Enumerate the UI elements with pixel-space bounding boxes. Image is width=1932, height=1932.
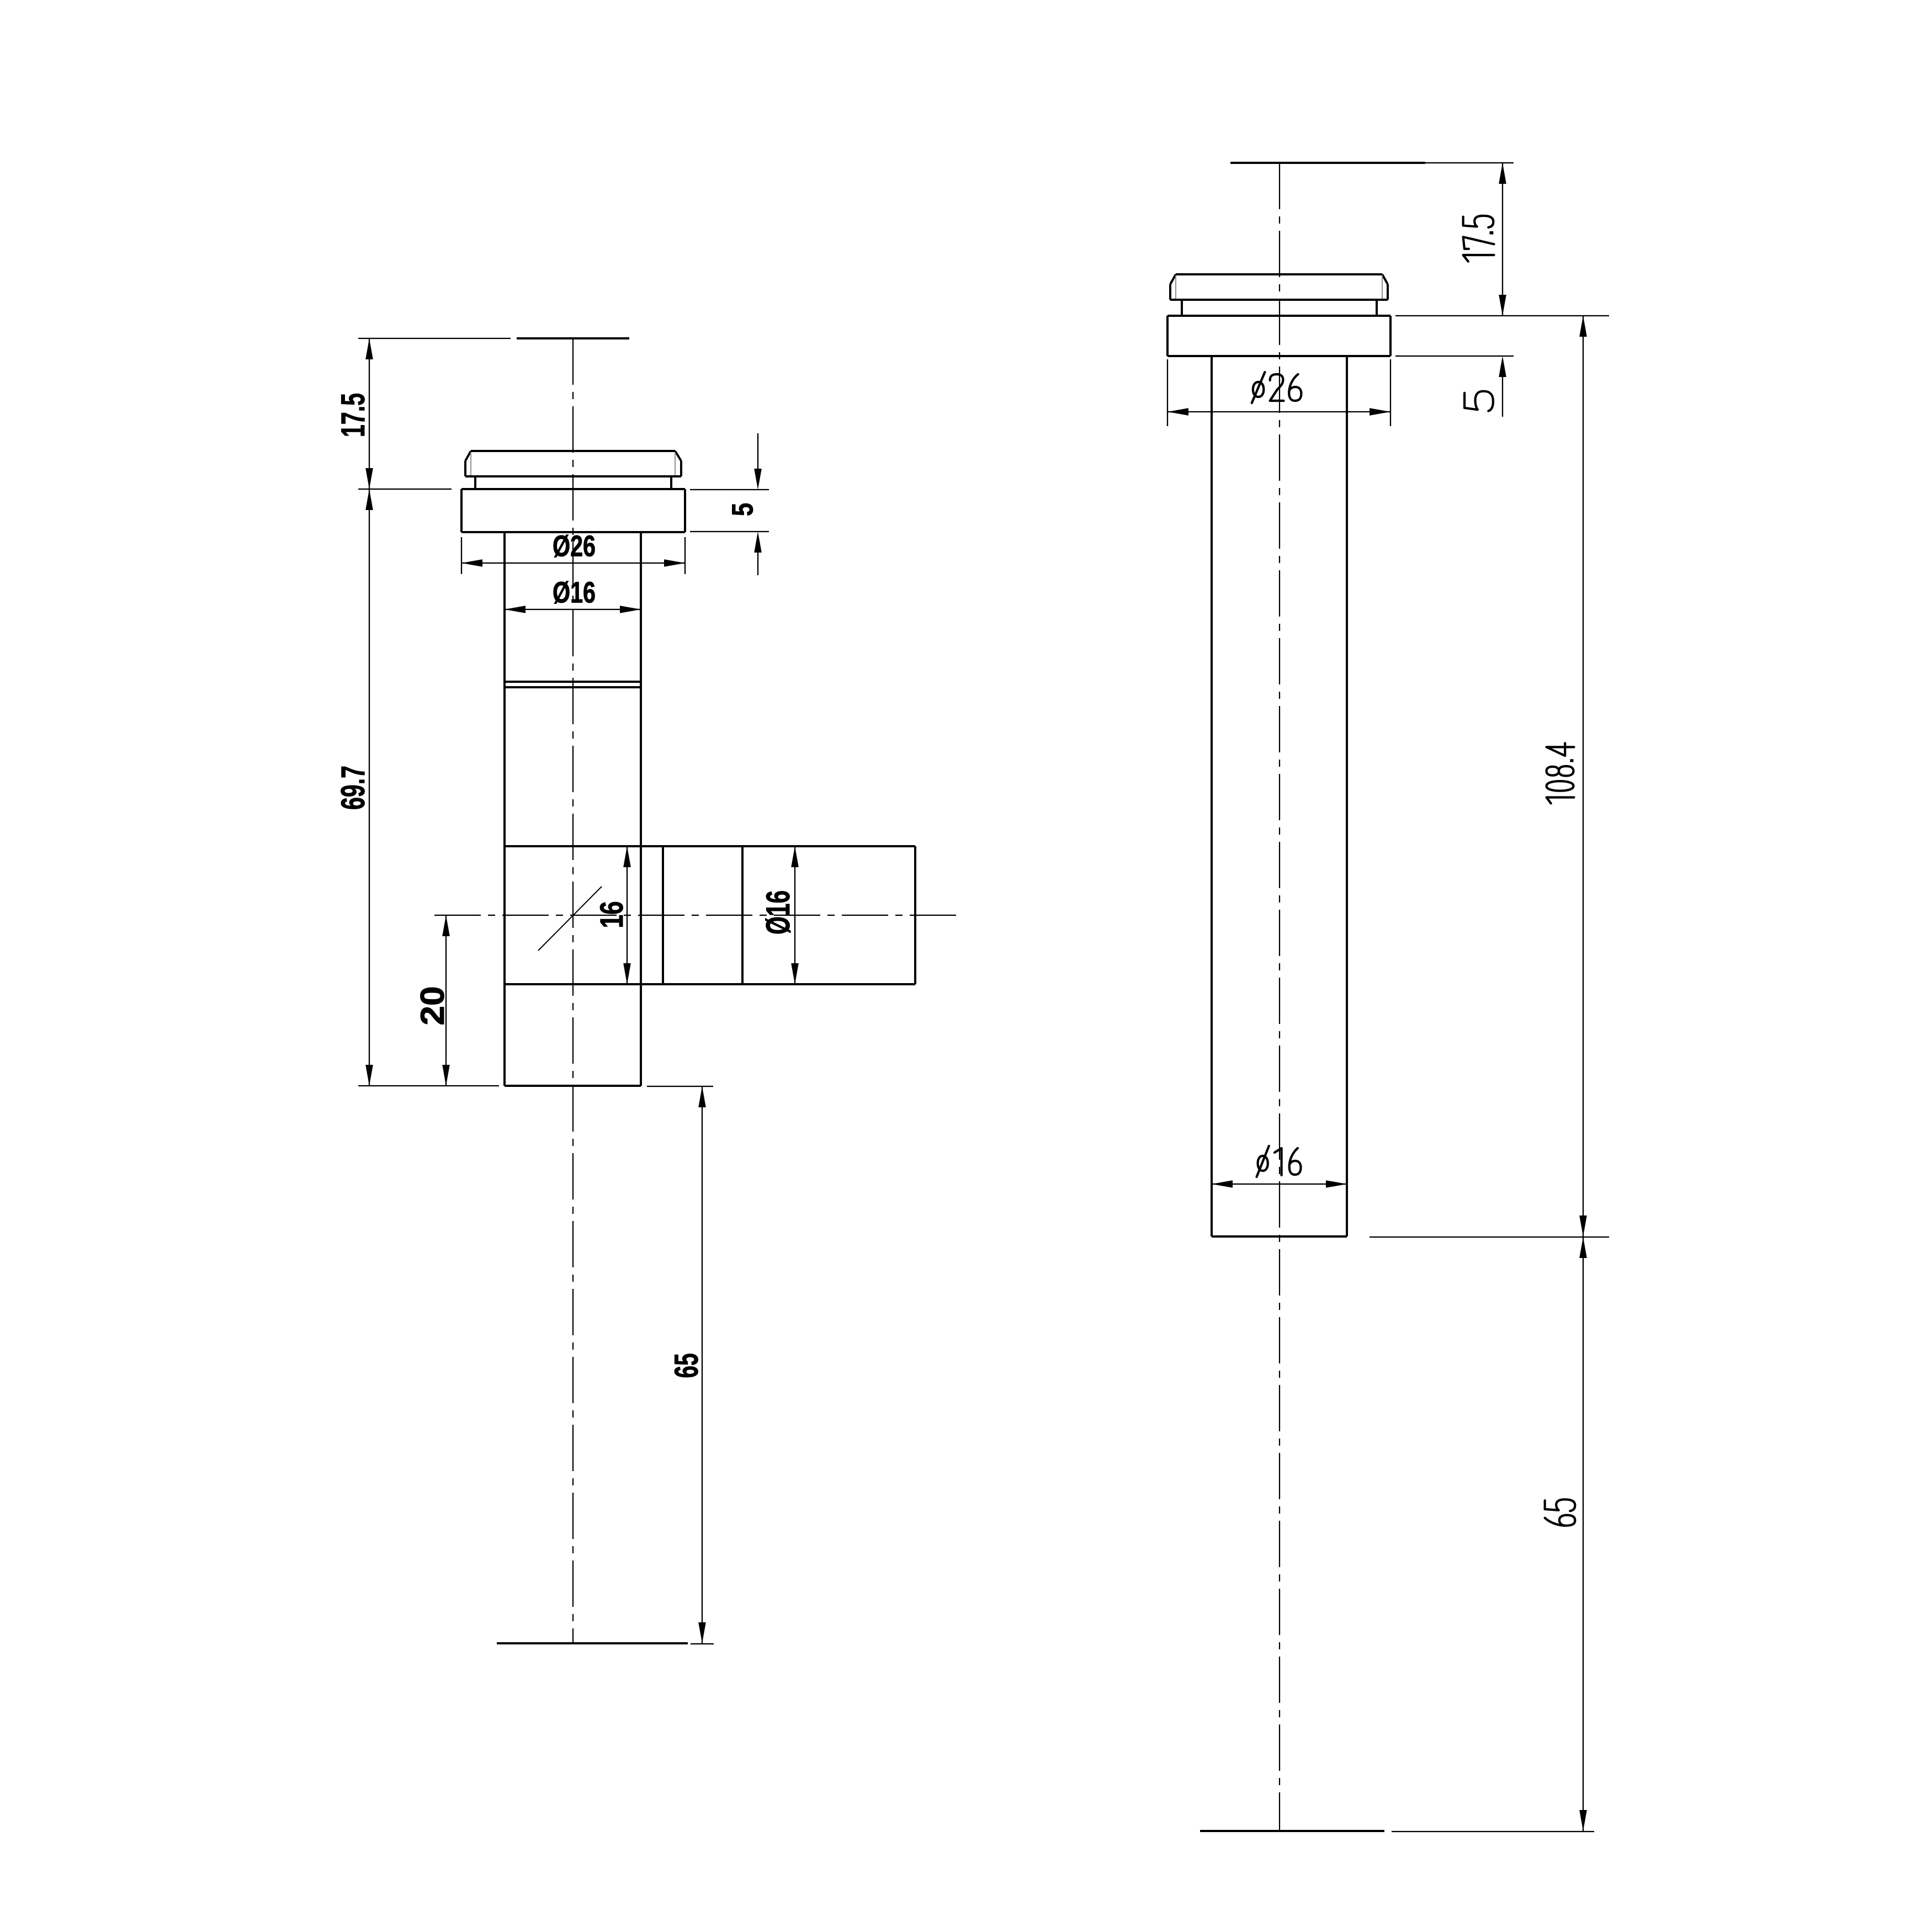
svg-text:Ø16: Ø16: [553, 576, 596, 609]
svg-text:Ø16: Ø16: [760, 890, 797, 935]
svg-text:17.5: 17.5: [335, 393, 371, 437]
svg-text:69.7: 69.7: [335, 766, 371, 810]
svg-text:20: 20: [414, 986, 451, 1026]
svg-text:16: 16: [594, 901, 630, 928]
svg-text:Ø26: Ø26: [553, 530, 596, 563]
svg-text:65: 65: [668, 1354, 705, 1378]
svg-text:5: 5: [726, 503, 760, 516]
